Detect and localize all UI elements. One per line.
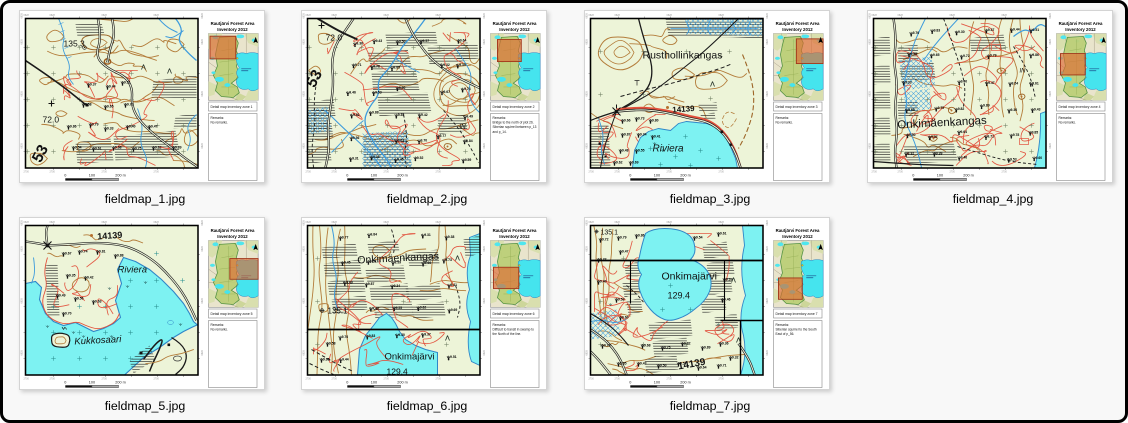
svg-text:9.34: 9.34 (640, 132, 647, 136)
svg-text:6828: 6828 (766, 246, 769, 252)
svg-text:6828: 6828 (766, 350, 769, 356)
svg-text:6828: 6828 (589, 14, 595, 17)
svg-text:6828: 6828 (585, 13, 588, 19)
svg-text:9.36: 9.36 (1011, 108, 1018, 112)
svg-text:9.61: 9.61 (95, 146, 102, 150)
svg-text:9.81: 9.81 (353, 113, 360, 117)
svg-text:6828: 6828 (24, 14, 30, 17)
svg-text:6828: 6828 (483, 220, 486, 226)
svg-text:6828: 6828 (201, 13, 204, 19)
svg-text:9.84: 9.84 (466, 139, 473, 143)
svg-text:9.83: 9.83 (934, 29, 941, 33)
svg-text:9.75: 9.75 (938, 106, 945, 110)
svg-text:9.36: 9.36 (356, 42, 363, 46)
svg-text:9.47: 9.47 (151, 124, 158, 128)
svg-text:2700: 2700 (306, 378, 312, 381)
svg-text:Detail map inventory zone 7: Detail map inventory zone 7 (776, 312, 818, 316)
svg-text:6828: 6828 (585, 220, 588, 226)
svg-text:6828: 6828 (585, 246, 588, 252)
svg-text:6828: 6828 (102, 221, 108, 224)
svg-text:2700: 2700 (615, 378, 621, 381)
svg-text:9.56: 9.56 (77, 296, 84, 300)
svg-text:9.71: 9.71 (720, 363, 727, 367)
svg-text:6828: 6828 (585, 350, 588, 356)
svg-text:9.66: 9.66 (624, 118, 631, 122)
svg-text:2700: 2700 (436, 171, 442, 174)
svg-text:9.72: 9.72 (602, 237, 609, 241)
svg-text:9.86: 9.86 (70, 124, 77, 128)
svg-text:9.68: 9.68 (644, 343, 651, 347)
svg-text:9.77: 9.77 (342, 235, 349, 239)
svg-text:6828: 6828 (20, 350, 23, 356)
svg-text:9.80: 9.80 (652, 118, 659, 122)
svg-text:9.82: 9.82 (684, 341, 691, 345)
svg-text:6828: 6828 (154, 221, 160, 224)
svg-text:9.43: 9.43 (1034, 108, 1041, 112)
svg-text:6828: 6828 (20, 39, 23, 45)
svg-text:6828: 6828 (306, 14, 312, 17)
svg-text:Inventory 2012: Inventory 2012 (217, 234, 248, 239)
svg-text:100: 100 (654, 174, 660, 178)
svg-text:9.59: 9.59 (465, 158, 472, 162)
svg-text:100: 100 (371, 174, 377, 178)
svg-text:6828: 6828 (483, 91, 486, 97)
svg-text:9.42: 9.42 (421, 113, 428, 117)
svg-text:9.70: 9.70 (65, 311, 72, 315)
svg-text:6828: 6828 (585, 143, 588, 149)
svg-text:9.55: 9.55 (638, 148, 645, 152)
svg-text:6828: 6828 (483, 350, 486, 356)
svg-text:6828: 6828 (332, 221, 338, 224)
svg-text:9.69: 9.69 (451, 308, 458, 312)
svg-text:2700: 2700 (24, 378, 30, 381)
svg-text:6828: 6828 (24, 221, 30, 224)
svg-text:9.38: 9.38 (448, 235, 455, 239)
svg-text:9.78: 9.78 (1013, 133, 1020, 137)
svg-text:6828: 6828 (302, 350, 305, 356)
svg-text:9.44: 9.44 (342, 358, 349, 362)
svg-text:6828: 6828 (20, 220, 23, 226)
svg-text:6828: 6828 (585, 39, 588, 45)
svg-text:9.76: 9.76 (342, 335, 349, 339)
svg-text:6828: 6828 (868, 91, 871, 97)
svg-text:9.85: 9.85 (1032, 130, 1039, 134)
svg-text:9.45: 9.45 (344, 261, 351, 265)
svg-text:9.78: 9.78 (373, 65, 380, 69)
svg-text:6828: 6828 (436, 221, 442, 224)
svg-text:6828: 6828 (766, 298, 769, 304)
svg-text:Riviera: Riviera (653, 144, 685, 155)
svg-text:9.79: 9.79 (92, 122, 99, 126)
svg-text:2700: 2700 (154, 171, 160, 174)
svg-text:9.41: 9.41 (450, 283, 457, 287)
svg-text:0: 0 (64, 381, 66, 385)
svg-text:6828: 6828 (766, 143, 769, 149)
svg-text:Rautjärvi Forest Area: Rautjärvi Forest Area (776, 21, 820, 26)
svg-text:9.44: 9.44 (1013, 28, 1020, 32)
svg-text:9.36: 9.36 (722, 341, 729, 345)
svg-text:6828: 6828 (585, 298, 588, 304)
svg-text:6828: 6828 (332, 14, 338, 17)
svg-text:6828: 6828 (201, 246, 204, 252)
svg-text:9.39: 9.39 (459, 63, 466, 67)
svg-text:9.49: 9.49 (466, 115, 473, 119)
svg-text:6828: 6828 (302, 220, 305, 226)
svg-text:200 m: 200 m (115, 381, 126, 385)
svg-text:6828: 6828 (483, 143, 486, 149)
svg-text:9.47: 9.47 (622, 249, 629, 253)
svg-text:100: 100 (89, 174, 95, 178)
svg-text:6828: 6828 (950, 14, 956, 17)
svg-text:9.58: 9.58 (85, 102, 92, 106)
svg-text:9.39: 9.39 (726, 277, 733, 281)
svg-text:6828: 6828 (384, 14, 390, 17)
svg-text:No remarks.: No remarks. (1059, 121, 1076, 125)
svg-text:9.82: 9.82 (958, 107, 965, 111)
svg-text:2700: 2700 (102, 378, 108, 381)
svg-text:6828: 6828 (868, 143, 871, 149)
svg-text:9.71: 9.71 (355, 63, 362, 67)
svg-text:2700: 2700 (332, 171, 338, 174)
svg-text:Inventory 2012: Inventory 2012 (782, 27, 813, 32)
svg-text:0: 0 (629, 381, 631, 385)
svg-text:200 m: 200 m (397, 174, 408, 178)
svg-text:6828: 6828 (302, 13, 305, 19)
svg-text:Detail map inventory zone 5: Detail map inventory zone 5 (211, 312, 253, 316)
svg-text:2700: 2700 (898, 171, 904, 174)
svg-text:No remarks.: No remarks. (776, 121, 793, 125)
svg-text:14139: 14139 (672, 104, 695, 115)
svg-text:9.82: 9.82 (155, 145, 162, 149)
svg-text:6828: 6828 (766, 13, 769, 19)
svg-text:6828: 6828 (719, 221, 725, 224)
svg-text:6828: 6828 (50, 14, 56, 17)
svg-text:IN: IN (1020, 69, 1027, 75)
svg-text:9.51: 9.51 (1033, 28, 1040, 32)
svg-text:200 m: 200 m (680, 174, 691, 178)
svg-text:6828: 6828 (1049, 13, 1052, 19)
svg-text:9.67: 9.67 (443, 90, 450, 94)
svg-text:9.31: 9.31 (352, 157, 359, 161)
svg-text:9.81: 9.81 (99, 249, 106, 253)
svg-text:6828: 6828 (667, 14, 673, 17)
svg-text:9.67: 9.67 (65, 251, 72, 255)
svg-text:2700: 2700 (384, 378, 390, 381)
svg-text:6828: 6828 (302, 91, 305, 97)
svg-text:100: 100 (89, 381, 95, 385)
svg-text:9.33: 9.33 (107, 126, 114, 130)
svg-text:9.84: 9.84 (370, 233, 377, 237)
svg-text:135.3: 135.3 (64, 39, 86, 49)
svg-text:9.48: 9.48 (372, 306, 379, 310)
svg-text:Remarks:: Remarks: (211, 116, 225, 120)
svg-text:2700: 2700 (667, 378, 673, 381)
svg-text:9.33: 9.33 (905, 80, 912, 84)
svg-text:9.72: 9.72 (963, 54, 970, 58)
svg-text:9.54: 9.54 (1012, 81, 1019, 85)
svg-text:9.52: 9.52 (417, 156, 424, 160)
svg-text:Remarks:: Remarks: (493, 323, 507, 327)
svg-text:Rautjärvi Forest Area: Rautjärvi Forest Area (211, 21, 255, 26)
svg-text:Inventory 2012: Inventory 2012 (1065, 27, 1096, 32)
svg-text:9.89: 9.89 (175, 145, 182, 149)
svg-text:9.32: 9.32 (443, 63, 450, 67)
svg-text:9.62: 9.62 (616, 160, 623, 164)
svg-text:6828: 6828 (615, 221, 621, 224)
svg-text:9.69: 9.69 (632, 160, 639, 164)
svg-text:6828: 6828 (1049, 39, 1052, 45)
svg-text:9.30: 9.30 (958, 30, 965, 34)
svg-text:9.70: 9.70 (421, 139, 428, 143)
svg-text:9.35: 9.35 (398, 113, 405, 117)
svg-text:2700: 2700 (719, 171, 725, 174)
svg-text:9.88: 9.88 (117, 253, 124, 257)
svg-text:9.43: 9.43 (376, 39, 383, 43)
svg-text:0: 0 (346, 174, 348, 178)
svg-text:6828: 6828 (667, 221, 673, 224)
svg-text:Detail map inventory zone 3: Detail map inventory zone 3 (776, 105, 818, 109)
svg-text:9.73: 9.73 (638, 116, 645, 120)
svg-text:9.41: 9.41 (654, 134, 661, 138)
svg-text:9.85: 9.85 (393, 66, 400, 70)
svg-text:6828: 6828 (589, 221, 595, 224)
svg-text:the North of the line.: the North of the line. (493, 332, 522, 336)
svg-text:2700: 2700 (50, 378, 56, 381)
svg-text:6828: 6828 (201, 350, 204, 356)
svg-text:6828: 6828 (615, 14, 621, 17)
svg-text:9.61: 9.61 (1032, 81, 1039, 85)
svg-text:9.89: 9.89 (983, 104, 990, 108)
svg-text:9.43: 9.43 (640, 361, 647, 365)
svg-text:6828: 6828 (1002, 14, 1008, 17)
svg-text:No remarks.: No remarks. (211, 121, 228, 125)
svg-text:9.50: 9.50 (399, 40, 406, 44)
svg-text:6828: 6828 (20, 143, 23, 149)
svg-text:9.74: 9.74 (464, 87, 471, 91)
svg-text:6828: 6828 (20, 298, 23, 304)
svg-text:9.51: 9.51 (124, 80, 131, 84)
svg-text:6828: 6828 (766, 220, 769, 226)
svg-text:Rautjärvi Forest Area: Rautjärvi Forest Area (211, 228, 255, 233)
svg-text:6828: 6828 (302, 298, 305, 304)
svg-text:9.85: 9.85 (620, 361, 627, 365)
svg-text:2700: 2700 (154, 378, 160, 381)
svg-text:6828: 6828 (483, 39, 486, 45)
svg-text:Rusthollinkangas: Rusthollinkangas (643, 50, 723, 62)
svg-text:9.83: 9.83 (369, 334, 376, 338)
svg-text:6828: 6828 (483, 298, 486, 304)
svg-text:9.46: 9.46 (961, 155, 968, 159)
svg-text:9.68: 9.68 (908, 108, 915, 112)
svg-text:2700: 2700 (332, 378, 338, 381)
svg-text:Detail map inventory zone 1: Detail map inventory zone 1 (211, 105, 253, 109)
svg-text:0: 0 (64, 174, 66, 178)
svg-text:9.86: 9.86 (1032, 53, 1039, 57)
svg-text:6828: 6828 (154, 14, 160, 17)
svg-text:9.63: 9.63 (398, 138, 405, 142)
svg-text:2700: 2700 (667, 171, 673, 174)
svg-text:9.51: 9.51 (450, 355, 457, 359)
svg-text:9.60: 9.60 (622, 315, 629, 319)
svg-text:9.65: 9.65 (323, 357, 330, 361)
svg-text:Rautjärvi Forest Area: Rautjärvi Forest Area (776, 228, 820, 233)
svg-text:2700: 2700 (50, 171, 56, 174)
svg-text:2700: 2700 (615, 171, 621, 174)
svg-text:Onkimajärvi: Onkimajärvi (662, 271, 717, 283)
svg-text:2700: 2700 (384, 171, 390, 174)
svg-text:9.54: 9.54 (75, 145, 82, 149)
svg-text:Bridge to the north of plot 26: Bridge to the north of plot 26. (493, 121, 534, 125)
svg-text:6828: 6828 (872, 14, 878, 17)
svg-text:6828: 6828 (20, 91, 23, 97)
svg-text:9.77: 9.77 (440, 134, 447, 138)
svg-text:2700: 2700 (306, 171, 312, 174)
svg-text:0: 0 (629, 174, 631, 178)
svg-text:6828: 6828 (302, 39, 305, 45)
svg-text:9.55: 9.55 (396, 306, 403, 310)
svg-text:9.78: 9.78 (604, 343, 611, 347)
svg-text:9.32: 9.32 (908, 152, 915, 156)
svg-text:9.75: 9.75 (664, 345, 671, 349)
svg-text:6828: 6828 (585, 91, 588, 97)
svg-text:200 m: 200 m (963, 174, 974, 178)
svg-text:Rautjärvi Forest Area: Rautjärvi Forest Area (493, 228, 537, 233)
svg-text:72.0: 72.0 (326, 33, 343, 43)
svg-text:200 m: 200 m (397, 381, 408, 385)
svg-text:9.42: 9.42 (87, 275, 94, 279)
svg-text:9.87: 9.87 (624, 132, 631, 136)
svg-text:East of p_56.: East of p_56. (776, 332, 795, 336)
svg-text:6828: 6828 (201, 220, 204, 226)
svg-text:9.79: 9.79 (990, 54, 997, 58)
svg-text:9.32: 9.32 (732, 355, 739, 359)
svg-text:Difficult to transit in swamp: Difficult to transit in swamp to (493, 328, 535, 332)
svg-text:9.68: 9.68 (115, 145, 122, 149)
svg-text:2700: 2700 (1002, 171, 1008, 174)
svg-text:100: 100 (654, 381, 660, 385)
svg-text:9.37: 9.37 (90, 82, 97, 86)
svg-text:9.37: 9.37 (988, 28, 995, 32)
svg-text:9.44: 9.44 (109, 84, 116, 88)
svg-text:Inventory 2012: Inventory 2012 (782, 234, 813, 239)
svg-text:9.53: 9.53 (375, 91, 382, 95)
svg-text:2700: 2700 (102, 171, 108, 174)
svg-text:6828: 6828 (302, 143, 305, 149)
svg-text:72.0: 72.0 (43, 115, 60, 125)
svg-text:6828: 6828 (302, 246, 305, 252)
svg-text:9.53: 9.53 (618, 297, 625, 301)
svg-text:Riviera: Riviera (118, 265, 148, 276)
svg-text:6828: 6828 (1049, 91, 1052, 97)
svg-text:200 m: 200 m (115, 174, 126, 178)
svg-text:9.76: 9.76 (913, 31, 920, 35)
svg-text:Remarks:: Remarks: (776, 116, 790, 120)
svg-text:Siberian squirrel to the South: Siberian squirrel to the South (776, 328, 817, 332)
svg-text:9.88: 9.88 (372, 111, 379, 115)
svg-text:6828: 6828 (719, 14, 725, 17)
svg-text:Remarks:: Remarks: (1059, 116, 1073, 120)
svg-text:9.45: 9.45 (397, 158, 404, 162)
svg-text:IN: IN (460, 125, 467, 131)
svg-text:Inventory 2012: Inventory 2012 (499, 234, 530, 239)
svg-text:6828: 6828 (20, 13, 23, 19)
svg-text:6828: 6828 (306, 221, 312, 224)
svg-text:Inventory 2012: Inventory 2012 (217, 27, 248, 32)
svg-text:Rautjärvi Forest Area: Rautjärvi Forest Area (493, 21, 537, 26)
svg-text:9.64: 9.64 (960, 130, 967, 134)
svg-text:6828: 6828 (50, 221, 56, 224)
svg-text:9.79: 9.79 (620, 235, 627, 239)
svg-text:100: 100 (371, 381, 377, 385)
svg-text:14139: 14139 (97, 230, 123, 242)
svg-text:6828: 6828 (201, 91, 204, 97)
svg-text:2700: 2700 (24, 171, 30, 174)
svg-text:9.37: 9.37 (424, 332, 431, 336)
svg-text:9.57: 9.57 (423, 39, 430, 43)
svg-text:9.80: 9.80 (346, 281, 353, 285)
svg-text:6828: 6828 (201, 39, 204, 45)
svg-text:9.46: 9.46 (349, 91, 356, 95)
svg-text:9.74: 9.74 (81, 249, 88, 253)
svg-text:9.53: 9.53 (1010, 157, 1017, 161)
svg-text:9.63: 9.63 (95, 299, 102, 303)
svg-text:0: 0 (346, 381, 348, 385)
svg-text:9.40: 9.40 (600, 279, 607, 283)
svg-text:9.75: 9.75 (135, 146, 142, 150)
svg-text:0: 0 (912, 174, 914, 178)
svg-text:Siberian squirrel between p_13: Siberian squirrel between p_13 (493, 125, 537, 129)
svg-text:6828: 6828 (898, 14, 904, 17)
svg-text:200 m: 200 m (680, 381, 691, 385)
svg-text:9.40: 9.40 (961, 80, 968, 84)
svg-text:6828: 6828 (201, 298, 204, 304)
svg-text:135.1: 135.1 (328, 307, 349, 316)
svg-text:9.60: 9.60 (1036, 156, 1043, 160)
svg-text:129.4: 129.4 (668, 291, 691, 301)
svg-text:9.57: 9.57 (931, 135, 938, 139)
svg-text:9.58: 9.58 (910, 52, 917, 56)
svg-text:9.73: 9.73 (445, 258, 452, 262)
svg-text:Detail map inventory zone 4: Detail map inventory zone 4 (1059, 105, 1101, 109)
svg-text:9.34: 9.34 (394, 284, 401, 288)
svg-text:Inventory 2012: Inventory 2012 (499, 27, 530, 32)
svg-text:9.65: 9.65 (107, 104, 114, 108)
svg-text:Detail map inventory zone 2: Detail map inventory zone 2 (493, 105, 535, 109)
svg-text:9.87: 9.87 (368, 282, 375, 286)
svg-text:6828: 6828 (483, 246, 486, 252)
svg-text:9.35: 9.35 (69, 273, 76, 277)
svg-text:6828: 6828 (766, 91, 769, 97)
svg-text:9.62: 9.62 (420, 306, 427, 310)
svg-text:No remarks.: No remarks. (211, 328, 228, 332)
svg-text:2700: 2700 (589, 171, 595, 174)
svg-text:9.39: 9.39 (936, 151, 943, 155)
svg-text:9.31: 9.31 (424, 233, 431, 237)
svg-text:6828: 6828 (868, 13, 871, 19)
svg-text:Rautjärvi Forest Area: Rautjärvi Forest Area (1059, 21, 1103, 26)
svg-text:2700: 2700 (719, 378, 725, 381)
svg-text:9.71: 9.71 (987, 135, 994, 139)
svg-text:9.30: 9.30 (398, 333, 405, 337)
svg-text:9.65: 9.65 (933, 53, 940, 57)
svg-text:6828: 6828 (436, 14, 442, 17)
svg-text:135.1: 135.1 (601, 230, 619, 237)
svg-text:9.86: 9.86 (638, 233, 645, 237)
svg-text:2700: 2700 (950, 171, 956, 174)
svg-text:6828: 6828 (766, 39, 769, 45)
svg-text:6828: 6828 (483, 13, 486, 19)
svg-text:Detail map inventory zone 6: Detail map inventory zone 6 (493, 312, 535, 316)
